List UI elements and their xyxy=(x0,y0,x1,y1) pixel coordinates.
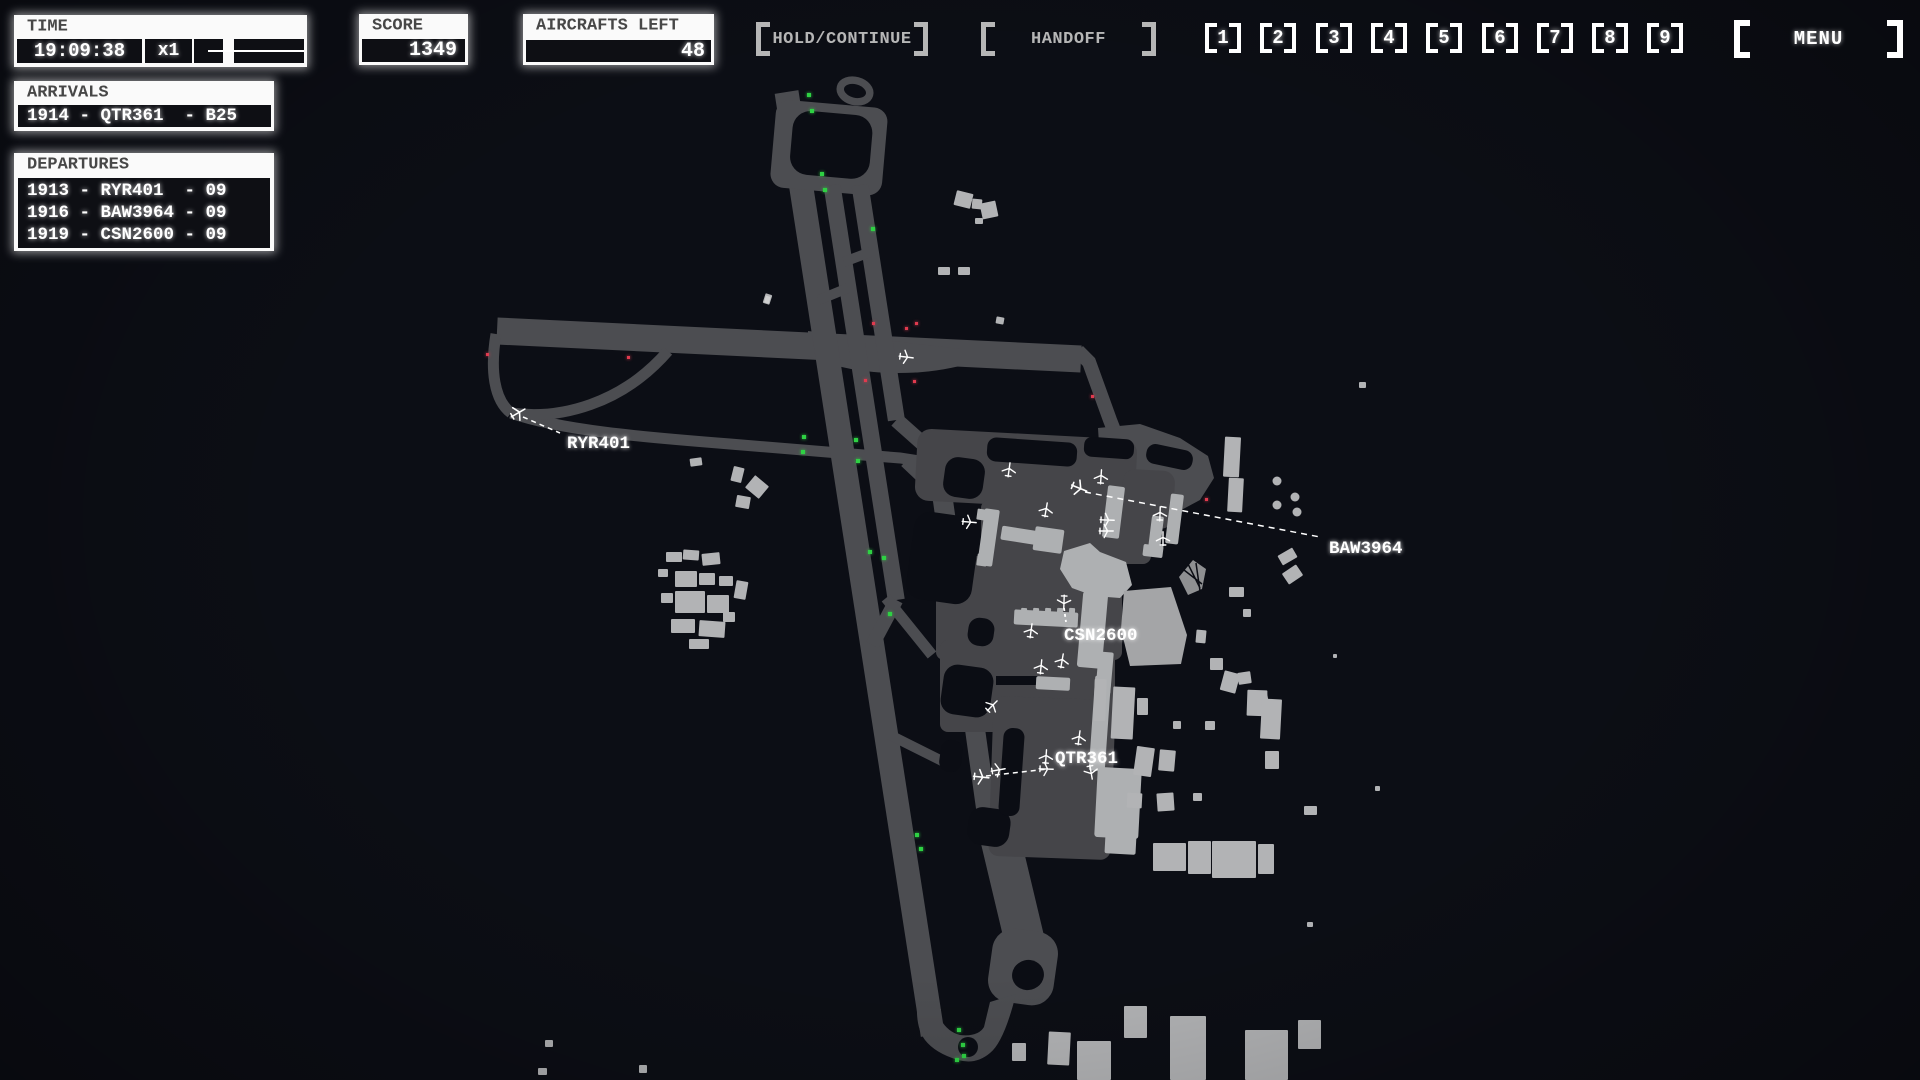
svg-text:RYR401: RYR401 xyxy=(567,434,630,454)
svg-text:CSN2600: CSN2600 xyxy=(1064,626,1138,646)
svg-text:BAW3964: BAW3964 xyxy=(1329,539,1403,559)
svg-text:QTR361: QTR361 xyxy=(1055,749,1118,769)
